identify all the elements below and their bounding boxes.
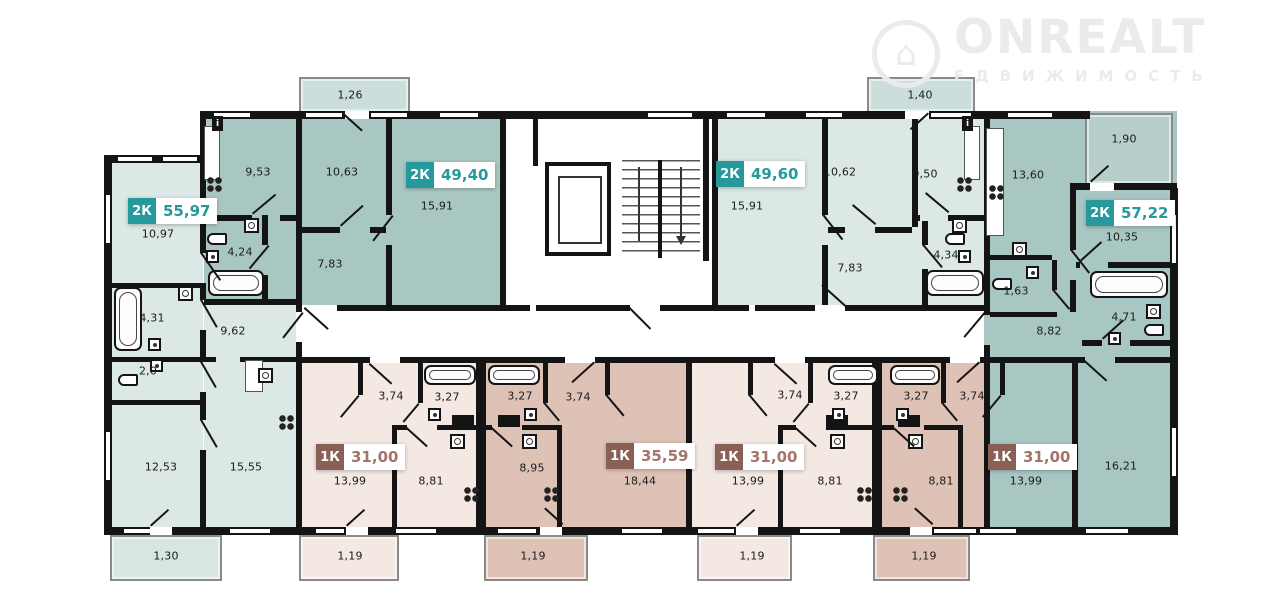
sink-icon	[450, 434, 465, 449]
info-icon: i	[212, 116, 223, 131]
window-marker	[1086, 527, 1128, 535]
window-marker	[104, 195, 112, 243]
toilet-icon	[945, 233, 965, 245]
door-opening	[1090, 183, 1114, 191]
door-opening	[736, 527, 758, 535]
apartment-badge-b[interactable]: 2К 49,40	[406, 162, 495, 188]
wall	[958, 425, 963, 527]
wall	[660, 305, 749, 311]
sink-icon	[178, 286, 193, 301]
bathtub-icon	[828, 365, 878, 385]
room-area-label: 8,82	[1036, 325, 1061, 338]
window-marker	[230, 527, 270, 535]
bathtub-icon	[1090, 271, 1168, 298]
room-area-label: 2,0	[139, 365, 157, 378]
stove-icon	[856, 486, 873, 503]
apartment-type: 2К	[716, 161, 744, 187]
toilet-icon	[118, 374, 138, 386]
balcony-area-label: 1,30	[153, 550, 178, 563]
sink-icon	[258, 368, 273, 383]
wall	[104, 400, 204, 405]
staircase-up-line	[638, 167, 640, 241]
room-area-label: 9,50	[912, 168, 937, 181]
balcony-area-label: 1,19	[337, 550, 362, 563]
staircase-down-arrowhead	[676, 236, 686, 245]
wall	[1070, 183, 1076, 250]
wall	[418, 363, 423, 403]
room-area-label: 3,27	[903, 390, 928, 403]
onrealt-logo: ⌂ ONREALT ЕДВИЖИМОСТЬ	[872, 14, 1214, 88]
wall	[533, 111, 538, 166]
window-marker	[498, 527, 536, 535]
wall	[1070, 280, 1076, 312]
apartment-badge-c[interactable]: 2К 49,60	[716, 161, 805, 187]
logo-brand-text: ONREALT	[954, 14, 1214, 61]
room-area-label: 3,27	[833, 390, 858, 403]
room-area-label: 3,74	[959, 390, 984, 403]
door-opening	[346, 527, 368, 535]
info-icon: i	[962, 116, 973, 131]
wall	[498, 415, 520, 427]
door-opening	[540, 527, 562, 535]
elevator-icon	[545, 162, 611, 256]
wall	[543, 363, 548, 403]
balcony-area-label: 1,19	[911, 550, 936, 563]
stove-icon	[463, 486, 480, 503]
stove-icon	[543, 486, 560, 503]
stove-icon	[988, 184, 1005, 201]
room-area-label: 16,21	[1105, 460, 1138, 473]
apartment-type: 2К	[128, 198, 156, 224]
room-area-label: 4,34	[933, 249, 958, 262]
window-marker	[163, 155, 197, 163]
room-fill	[302, 311, 984, 357]
door-opening	[910, 527, 932, 535]
stove-icon	[206, 176, 223, 193]
wall	[778, 425, 783, 527]
room-area-label: 13,99	[334, 475, 367, 488]
apartment-area: 31,00	[743, 444, 804, 470]
wall	[437, 425, 480, 430]
window-marker	[934, 527, 976, 535]
sink-icon	[1146, 304, 1161, 319]
toilet-icon	[207, 233, 227, 245]
wall	[337, 305, 530, 311]
room-area-label: 8,81	[418, 475, 443, 488]
washer-icon	[148, 338, 161, 351]
wall	[805, 357, 950, 363]
bathtub-icon	[488, 365, 540, 385]
room-area-label: 15,91	[421, 200, 454, 213]
room-area-label: 13,99	[732, 475, 765, 488]
wall	[1108, 262, 1177, 268]
toilet-icon	[1144, 324, 1164, 336]
wall	[822, 245, 828, 305]
room-area-label: 13,99	[1010, 475, 1043, 488]
room-area-label: 7,83	[317, 258, 342, 271]
apartment-type: 1К	[606, 443, 634, 469]
wall	[748, 363, 753, 395]
window-marker	[806, 111, 842, 119]
room-area-label: 4,24	[227, 246, 252, 259]
room-area-label: 8,81	[928, 475, 953, 488]
washer-icon	[524, 408, 537, 421]
room-area-label: 12,53	[145, 461, 178, 474]
apartment-area: 31,00	[344, 444, 405, 470]
washer-icon	[832, 408, 845, 421]
room-area-label: 10,63	[326, 166, 359, 179]
wall	[200, 330, 206, 362]
room-area-label: 15,55	[230, 461, 263, 474]
apartment-badge-f[interactable]: 1К 35,59	[606, 443, 695, 469]
wall	[924, 425, 962, 430]
window-marker	[306, 111, 342, 119]
bathtub-icon	[890, 365, 940, 385]
floorplan: i i 2К 55,97 2К 49,40 2К 49,60 2К 57,22 …	[0, 0, 1280, 590]
wall	[386, 245, 392, 305]
wall	[822, 111, 828, 215]
door-opening	[150, 527, 172, 535]
window-marker	[980, 527, 1016, 535]
wall	[386, 111, 392, 215]
apartment-area: 57,22	[1114, 200, 1175, 226]
room-area-label: 10,97	[142, 228, 175, 241]
room-area-label: 4,71	[1111, 311, 1136, 324]
room-area-label: 15,91	[731, 200, 764, 213]
wall	[703, 111, 709, 261]
washer-icon	[896, 408, 909, 421]
stove-icon	[892, 486, 909, 503]
room-area-label: 13,60	[1012, 169, 1045, 182]
wall	[1115, 357, 1170, 363]
wall	[500, 111, 506, 305]
wall	[358, 363, 363, 395]
apartment-type: 1К	[988, 444, 1016, 470]
washer-icon	[958, 250, 971, 263]
bathtub-icon	[926, 270, 984, 296]
kitchen-counter-icon	[204, 126, 220, 180]
wall	[755, 305, 815, 311]
balcony-area-label: 1,40	[907, 89, 932, 102]
balcony-area-label: 1,19	[520, 550, 545, 563]
wall	[595, 357, 775, 363]
wall	[296, 357, 370, 363]
window-marker	[800, 527, 840, 535]
wall	[990, 312, 1057, 317]
washer-icon	[1108, 332, 1121, 345]
window-marker	[622, 527, 662, 535]
wall	[296, 342, 302, 527]
sink-icon	[522, 434, 537, 449]
apartment-area: 31,00	[1016, 444, 1077, 470]
wall	[980, 357, 1085, 363]
balcony-area-label: 1,19	[739, 550, 764, 563]
wall	[200, 283, 206, 300]
wall	[605, 363, 610, 395]
wall	[296, 111, 302, 312]
wall	[1082, 340, 1102, 346]
wall	[875, 227, 912, 233]
apartment-area: 49,60	[744, 161, 805, 187]
wall	[845, 305, 990, 311]
room-area-label: 1,63	[1003, 285, 1028, 298]
wall	[204, 299, 302, 305]
apartment-badge-h[interactable]: 1К 31,00	[988, 444, 1077, 470]
apartment-area: 55,97	[156, 198, 217, 224]
sink-icon	[1012, 242, 1027, 257]
apartment-type: 2К	[1086, 200, 1114, 226]
wall	[1052, 260, 1057, 290]
room-area-label: 3,27	[434, 391, 459, 404]
window-marker	[371, 111, 407, 119]
wall	[392, 425, 397, 527]
wall	[1000, 363, 1005, 395]
window-marker	[118, 155, 152, 163]
window-marker	[727, 111, 765, 119]
staircase-divider	[658, 160, 662, 258]
wall	[200, 392, 206, 420]
wall	[522, 425, 560, 430]
stove-icon	[956, 176, 973, 193]
room-area-label: 3,74	[565, 391, 590, 404]
wall	[1114, 183, 1177, 190]
wall	[984, 345, 990, 527]
wall	[302, 227, 340, 233]
stove-icon	[278, 414, 295, 431]
wall	[872, 363, 882, 527]
house-icon: ⌂	[872, 20, 940, 88]
wall	[922, 221, 928, 245]
wall	[712, 111, 718, 305]
room-area-label: 9,62	[220, 325, 245, 338]
window-marker	[396, 527, 436, 535]
kitchen-counter-icon	[986, 128, 1004, 236]
apartment-type: 1К	[316, 444, 344, 470]
balcony-area-label: 1,90	[1111, 133, 1136, 146]
wall	[400, 357, 565, 363]
staircase-down-arrow	[680, 167, 682, 237]
room-area-label: 3,74	[777, 389, 802, 402]
sink-icon	[830, 434, 845, 449]
wall	[200, 450, 206, 527]
apartment-badge-g[interactable]: 1К 31,00	[715, 444, 804, 470]
logo-subtitle-text: ЕДВИЖИМОСТЬ	[954, 67, 1214, 85]
apartment-type: 1К	[715, 444, 743, 470]
room-area-label: 8,95	[519, 462, 544, 475]
bathtub-icon	[424, 365, 476, 385]
window-marker	[440, 111, 478, 119]
window-marker	[104, 432, 112, 480]
window-marker	[316, 527, 344, 535]
room-area-label: 9,53	[245, 166, 270, 179]
floorplan-page: i i 2К 55,97 2К 49,40 2К 49,60 2К 57,22 …	[0, 0, 1280, 590]
room-area-label: 8,81	[817, 475, 842, 488]
balcony-area-label: 1,26	[337, 89, 362, 102]
washer-icon	[428, 408, 441, 421]
window-marker	[698, 527, 734, 535]
apartment-badge-e[interactable]: 1К 31,00	[316, 444, 405, 470]
room-area-label: 7,83	[837, 262, 862, 275]
kitchen-counter-icon	[964, 126, 980, 180]
apartment-type: 2К	[406, 162, 434, 188]
wall	[262, 215, 268, 245]
window-marker	[1008, 111, 1052, 119]
sink-icon	[952, 218, 967, 233]
wall	[941, 363, 946, 403]
apartment-area: 35,59	[634, 443, 695, 469]
apartment-area: 49,40	[434, 162, 495, 188]
wall	[536, 305, 630, 311]
washer-icon	[1026, 266, 1039, 279]
room-area-label: 10,35	[1106, 231, 1139, 244]
wall	[808, 363, 813, 403]
apartment-badge-d[interactable]: 2К 57,22	[1086, 200, 1175, 226]
room-area-label: 4,31	[139, 312, 164, 325]
bathtub-icon	[114, 287, 142, 351]
sink-icon	[244, 218, 259, 233]
room-area-label: 3,74	[378, 390, 403, 403]
room-area-label: 10,62	[824, 166, 857, 179]
room-area-label: 18,44	[624, 475, 657, 488]
wall	[557, 425, 562, 527]
window-marker	[1170, 428, 1178, 476]
wall	[1070, 183, 1090, 190]
apartment-badge-a[interactable]: 2К 55,97	[128, 198, 217, 224]
window-marker	[648, 111, 692, 119]
room-area-label: 3,27	[507, 390, 532, 403]
